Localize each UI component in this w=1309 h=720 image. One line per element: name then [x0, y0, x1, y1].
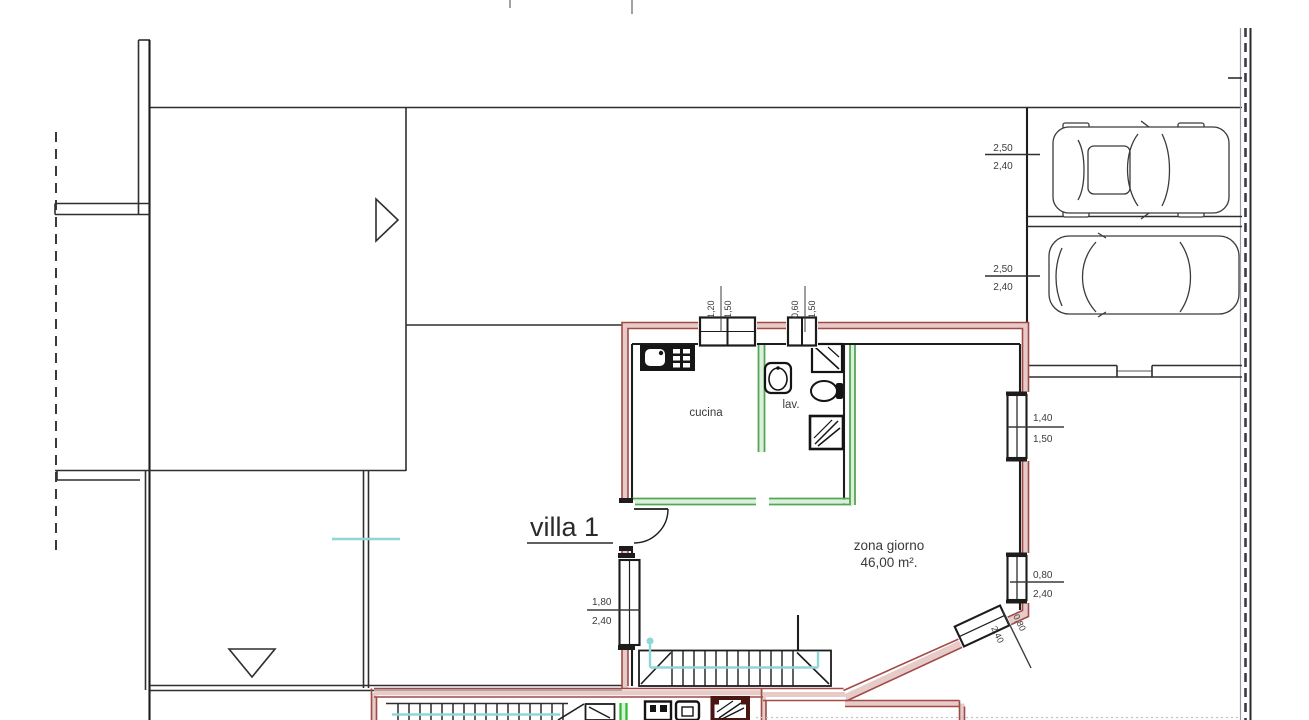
dim-label: 1,80 — [592, 597, 612, 608]
triangle-right-icon — [376, 199, 398, 241]
lower-shower-icon — [713, 698, 749, 720]
window-left — [616, 553, 643, 650]
floor-plan-canvas: 2,50 2,40 2,50 2,40 — [0, 0, 1309, 720]
dim-label: 1,20 — [706, 300, 716, 318]
kitchen-counter-icon — [640, 345, 695, 372]
lower-stairs — [386, 704, 615, 720]
toilet-icon — [811, 381, 843, 401]
floor-plan-svg: 2,50 2,40 2,50 2,40 — [0, 0, 1309, 720]
window-diagonal — [952, 603, 1012, 649]
lower-green-wall — [621, 703, 627, 720]
shower-icon — [810, 416, 843, 449]
dim-parking-1: 2,50 2,40 — [985, 143, 1040, 172]
door-swing-icon — [634, 509, 668, 543]
window-top-1 — [698, 315, 757, 348]
window-top-2 — [786, 315, 818, 348]
boiler-icon — [676, 702, 699, 720]
dim-label: 2,50 — [993, 264, 1013, 275]
neighbor-building — [55, 40, 622, 720]
shower-box-icon — [812, 344, 842, 372]
washing-machine-icon — [645, 702, 671, 720]
dim-label: 2,40 — [993, 161, 1013, 172]
room-label-zona-giorno: zona giorno — [854, 538, 925, 553]
lav-sink-icon — [765, 363, 791, 393]
window-right-2 — [1004, 553, 1032, 604]
dim-label: 2,40 — [993, 282, 1013, 293]
dim-label: 1,50 — [723, 300, 733, 318]
dim-label: 1,50 — [807, 300, 817, 318]
area-label: 46,00 m². — [860, 555, 917, 570]
dim-label: 2,40 — [1033, 589, 1053, 600]
triangle-down-icon — [229, 649, 275, 677]
villa-title: villa 1 — [530, 512, 599, 542]
room-label-lav: lav. — [782, 399, 799, 411]
dim-label: 2,40 — [592, 616, 612, 627]
dim-label: 1,50 — [1033, 434, 1053, 445]
labels: villa 1 cucina lav. zona giorno 46,00 m²… — [527, 399, 924, 570]
entry-door — [617, 498, 668, 551]
room-label-cucina: cucina — [689, 407, 723, 419]
dim-label: 2,50 — [993, 143, 1013, 154]
dim-label: 0,80 — [1033, 570, 1053, 581]
parking-divider — [1027, 217, 1242, 227]
car-icon — [1049, 233, 1239, 317]
dim-parking-2: 2,50 2,40 — [985, 264, 1040, 293]
car-icon — [1053, 121, 1229, 219]
property-boundary-right — [1228, 28, 1251, 720]
dim-label: 0,60 — [790, 300, 800, 318]
parking-south-wall — [1028, 366, 1242, 378]
dim-label: 1,40 — [1033, 413, 1053, 424]
